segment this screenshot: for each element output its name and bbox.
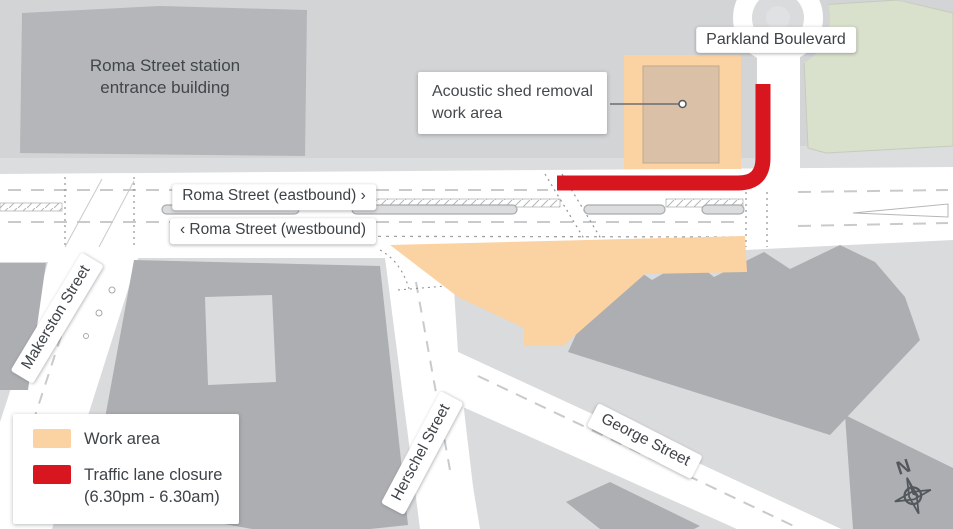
legend-lane-closure-line2: (6.30pm - 6.30am)	[84, 486, 222, 508]
legend-work-area-label: Work area	[84, 428, 160, 450]
legend-item-lane-closure: Traffic lane closure (6.30pm - 6.30am)	[33, 464, 239, 508]
work-area-swatch	[33, 429, 71, 448]
legend-lane-closure-line1: Traffic lane closure	[84, 464, 222, 486]
street-label-roma-westbound: ‹ Roma Street (westbound)	[170, 218, 376, 244]
callout-line2: work area	[432, 103, 593, 125]
street-label-parkland-boulevard: Parkland Boulevard	[696, 27, 856, 53]
roadworks-map: Roma Street station entrance building Ac…	[0, 0, 953, 529]
legend-lane-closure-label: Traffic lane closure (6.30pm - 6.30am)	[84, 464, 222, 508]
station-caption-line1: Roma Street station	[35, 55, 295, 77]
courtyard	[205, 295, 276, 385]
legend: Work area Traffic lane closure (6.30pm -…	[13, 414, 239, 524]
acoustic-shed-callout: Acoustic shed removal work area	[418, 72, 607, 134]
station-building-caption: Roma Street station entrance building	[35, 55, 295, 99]
acoustic-shed	[643, 66, 719, 163]
callout-marker-dot	[679, 101, 686, 108]
legend-item-work-area: Work area	[33, 428, 239, 450]
street-label-roma-eastbound: Roma Street (eastbound) ›	[172, 184, 376, 210]
station-caption-line2: entrance building	[35, 77, 295, 99]
callout-line1: Acoustic shed removal	[432, 81, 593, 103]
lane-closure-swatch	[33, 465, 71, 484]
